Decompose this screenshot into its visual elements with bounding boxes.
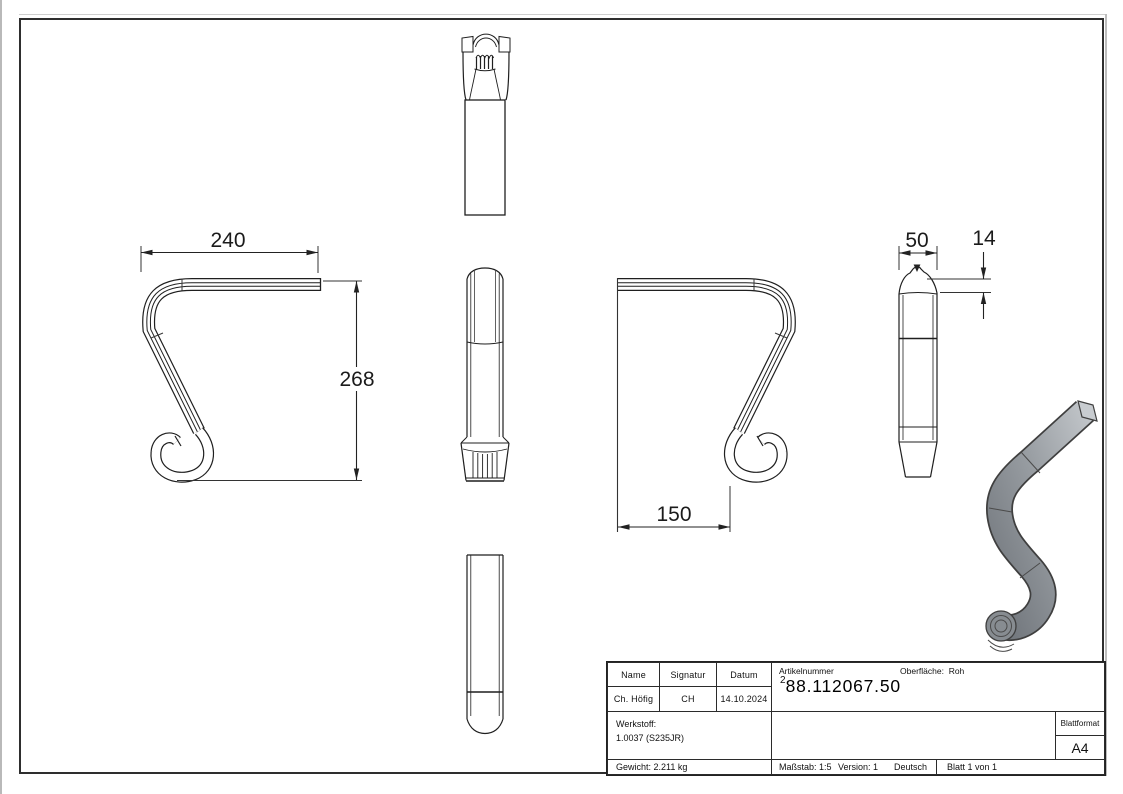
material-label: Werkstoff: [616,717,771,731]
sheet-cell: Blatt 1 von 1 [936,759,1105,775]
name-header-cell: Name [607,662,660,687]
end-view-right [899,265,937,478]
material-cell: Werkstoff: 1.0037 (S235JR) [607,711,772,760]
date-header-cell: Datum [716,662,772,687]
side-view-right [618,279,789,478]
surface-label: Oberfläche: Roh [900,666,964,676]
front-view-bottom [467,555,503,734]
front-view-top [462,34,510,215]
dim-240-label: 240 [210,229,245,252]
dim-150: 150 [618,278,731,532]
iso-view-3d [986,401,1097,651]
side-view-left [149,278,321,477]
weight-cell: Gewicht: 2.211 kg [607,759,772,775]
format-label-cell: Blattformat [1055,711,1105,736]
front-view-middle [461,268,509,481]
dim-50-label: 50 [905,229,928,252]
dim-240: 240 [141,229,318,273]
dim-50: 50 [899,229,937,270]
name-value-cell: Ch. Höfig [607,686,660,712]
surface-value: Roh [949,666,965,676]
title-block: Name Signatur Datum Ch. Höfig CH 14.10.2… [606,661,1106,776]
page: { "dims": { "w240": "240", "h268": "268"… [0,0,1123,794]
signature-value-cell: CH [659,686,717,712]
dim-268-label: 268 [339,368,374,391]
format-value-cell: A4 [1055,735,1105,760]
scale-value: Maßstab: 1:5 [779,762,832,772]
dim-150-label: 150 [656,503,691,526]
signature-header-cell: Signatur [659,662,717,687]
language-value: Deutsch [894,762,927,772]
article-number: 288.112067.50 [780,675,901,697]
scale-cell: Maßstab: 1:5 Version: 1 Deutsch [771,759,937,775]
date-value-cell: 14.10.2024 [716,686,772,712]
version-value: Version: 1 [838,762,878,772]
material-value: 1.0037 (S235JR) [616,731,771,745]
dim-14-label: 14 [972,227,996,250]
empty-cell [771,711,1056,760]
article-cell: Artikelnummer Oberfläche: Roh 288.112067… [771,662,1105,712]
